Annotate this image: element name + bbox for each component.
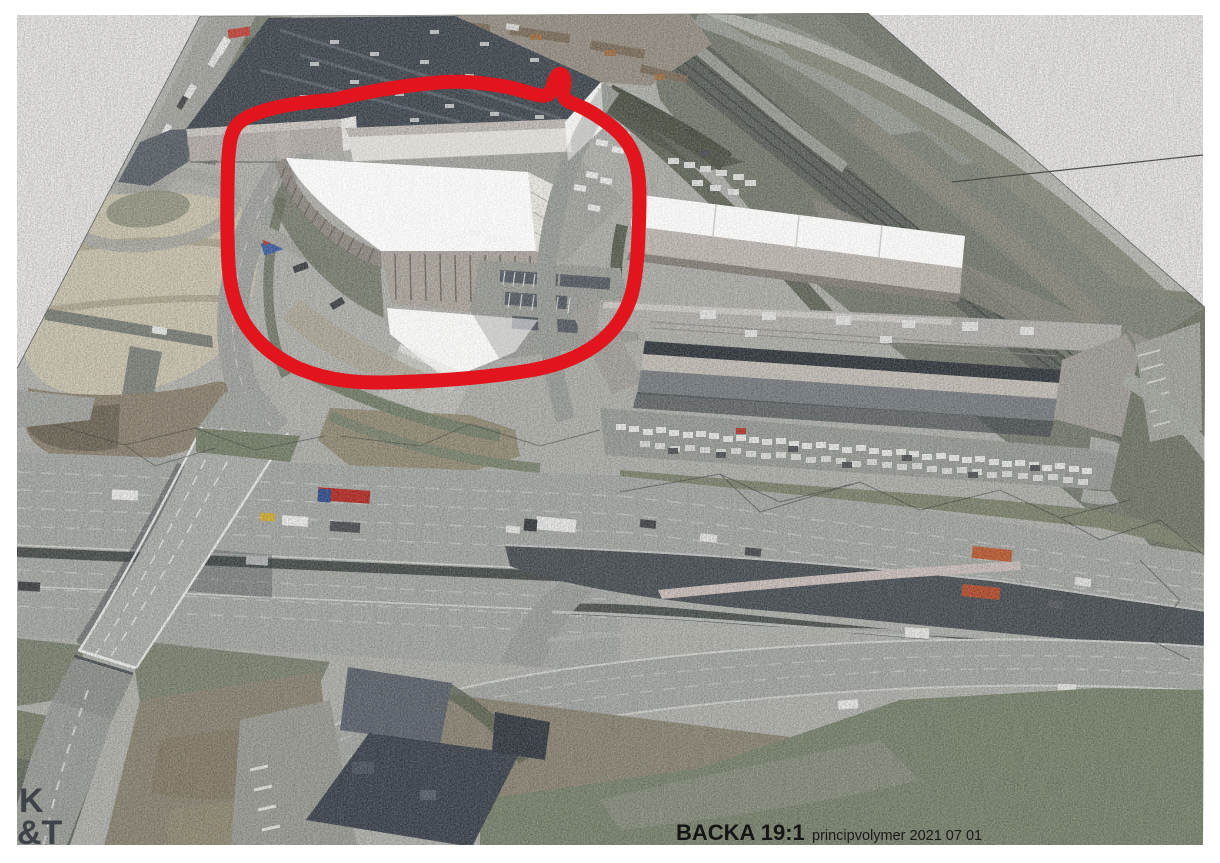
svg-text:principvolymer 2021 07 01: principvolymer 2021 07 01 — [812, 828, 982, 844]
svg-text:&T: &T — [17, 814, 63, 852]
svg-text:BACKA 19:1: BACKA 19:1 — [676, 820, 805, 845]
